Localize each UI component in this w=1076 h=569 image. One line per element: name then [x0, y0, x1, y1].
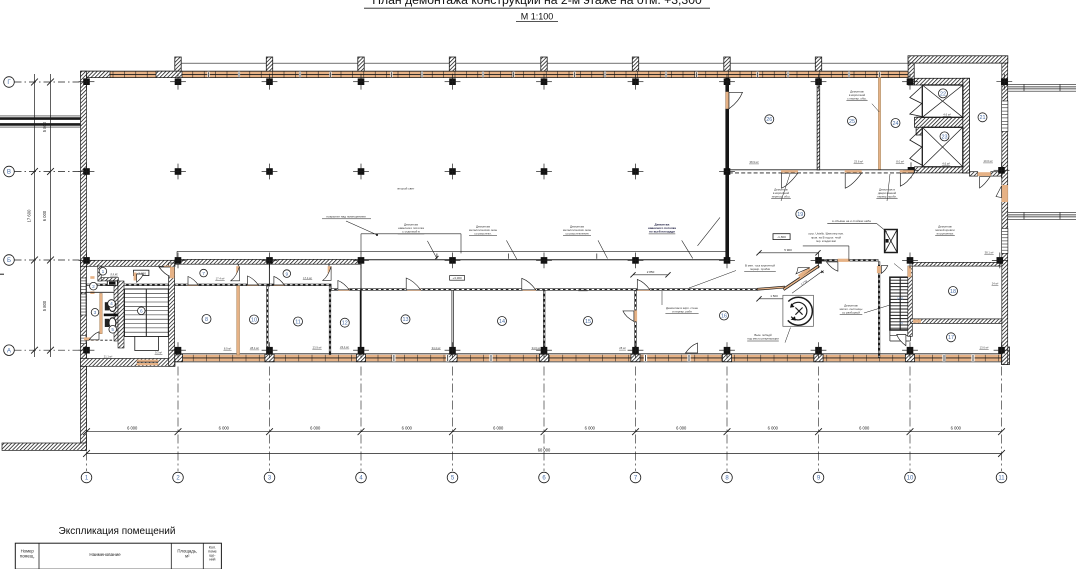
svg-text:6 000: 6 000	[859, 425, 870, 430]
svg-text:6 000: 6 000	[42, 210, 47, 221]
svg-text:6 000: 6 000	[402, 425, 413, 430]
svg-text:6 000: 6 000	[493, 425, 504, 430]
svg-text:4: 4	[110, 301, 113, 307]
svg-text:25: 25	[849, 119, 855, 125]
svg-text:23: 23	[942, 134, 948, 140]
svg-text:21: 21	[980, 115, 986, 121]
svg-text:17.4 м²: 17.4 м²	[216, 276, 225, 280]
svg-text:1 500: 1 500	[770, 294, 778, 298]
svg-text:5: 5	[111, 327, 114, 333]
svg-text:17.4 м²: 17.4 м²	[303, 276, 312, 280]
svg-text:со разборкой: со разборкой	[842, 310, 860, 314]
svg-text:6: 6	[140, 309, 143, 315]
svg-text:6 000: 6 000	[219, 425, 230, 430]
svg-text:покрытие над помещением: покрытие над помещением	[326, 214, 365, 218]
svg-text:4.6 м²: 4.6 м²	[942, 161, 950, 165]
svg-text:перекр. пробки: перекр. пробки	[750, 267, 771, 271]
svg-text:из рулонных: из рулонных	[937, 231, 954, 235]
svg-text:6 000: 6 000	[768, 425, 779, 430]
svg-text:19: 19	[797, 212, 803, 218]
svg-text:11: 11	[295, 319, 301, 325]
svg-text:М 1:100: М 1:100	[521, 12, 554, 22]
svg-text:Наименование: Наименование	[89, 552, 121, 557]
svg-text:6 000: 6 000	[310, 425, 321, 430]
svg-text:10.6 м²: 10.6 м²	[983, 159, 992, 163]
svg-text:9: 9	[285, 271, 288, 277]
svg-text:Экспликация помещений: Экспликация помещений	[59, 526, 176, 537]
svg-text:6 000: 6 000	[676, 425, 687, 430]
svg-text:23.6 м²: 23.6 м²	[854, 160, 863, 164]
svg-text:5 800: 5 800	[42, 300, 47, 311]
svg-text:13.6 м²: 13.6 м²	[980, 345, 989, 349]
svg-text:6 000: 6 000	[585, 425, 596, 430]
svg-text:под место рекуперации: под место рекуперации	[747, 337, 779, 341]
svg-text:с отделкой в: с отделкой в	[402, 230, 420, 234]
svg-text:12: 12	[342, 321, 348, 327]
svg-text:перегор. обш.: перегор. обш.	[772, 194, 791, 198]
svg-text:17.5 м²: 17.5 м²	[579, 287, 588, 291]
svg-text:13: 13	[403, 317, 409, 323]
svg-text:6 000: 6 000	[951, 425, 962, 430]
svg-text:1: 1	[102, 269, 105, 275]
svg-text:28.4 м²: 28.4 м²	[250, 346, 259, 350]
svg-text:60 000: 60 000	[538, 447, 551, 452]
svg-text:План демонтажа конструкций на: План демонтажа конструкций на 2-м этаже …	[372, 0, 702, 7]
svg-text:8: 8	[205, 317, 208, 323]
svg-text:38.9 м²: 38.9 м²	[749, 160, 758, 164]
svg-text:помещ.: помещ.	[20, 554, 35, 559]
svg-text:10: 10	[907, 476, 914, 482]
svg-text:8.9 м²: 8.9 м²	[224, 346, 231, 350]
svg-text:со расстекления: со расстекления	[565, 231, 588, 235]
svg-text:23.4 м²: 23.4 м²	[340, 345, 349, 349]
svg-text:6 000: 6 000	[127, 425, 138, 430]
svg-text:9.3 м²: 9.3 м²	[155, 350, 162, 354]
svg-text:16: 16	[721, 313, 727, 319]
svg-text:со расстекл.: со расстекл.	[474, 231, 491, 235]
svg-text:по всей площади: по всей площади	[649, 230, 675, 234]
svg-text:перекр. пробл.: перекр. пробл.	[877, 194, 897, 198]
svg-text:+3,300: +3,300	[452, 276, 462, 280]
svg-text:28 м²: 28 м²	[619, 346, 626, 350]
svg-text:2: 2	[92, 284, 95, 290]
svg-text:7: 7	[202, 271, 205, 277]
svg-text:10: 10	[251, 317, 257, 323]
svg-text:24: 24	[893, 121, 899, 127]
svg-text:22: 22	[940, 91, 946, 97]
svg-text:второй свет: второй свет	[398, 187, 415, 191]
svg-text:18: 18	[950, 289, 956, 295]
svg-text:8.0 м²: 8.0 м²	[896, 160, 904, 164]
svg-text:11: 11	[998, 476, 1005, 482]
svg-text:34.6 м²: 34.6 м²	[532, 346, 541, 350]
svg-text:и перекр. рабн: и перекр. рабн	[672, 309, 692, 313]
svg-text:21.1 м²: 21.1 м²	[104, 355, 113, 359]
svg-text:23.9 м²: 23.9 м²	[313, 345, 322, 349]
svg-text:3: 3	[94, 310, 97, 316]
svg-text:2.1 м²: 2.1 м²	[111, 272, 118, 276]
svg-text:4.6 м²: 4.6 м²	[943, 113, 951, 117]
svg-text:15: 15	[585, 319, 591, 325]
svg-text:17: 17	[948, 335, 954, 341]
svg-text:38.1 м²: 38.1 м²	[985, 251, 994, 255]
svg-text:с перекр. обш.: с перекр. обш.	[847, 96, 867, 100]
svg-text:Б: Б	[7, 257, 11, 264]
svg-text:34.4 м²: 34.4 м²	[432, 346, 441, 350]
svg-text:2 850: 2 850	[647, 270, 655, 274]
svg-text:5 900: 5 900	[784, 248, 792, 252]
svg-text:14: 14	[499, 319, 505, 325]
svg-text:5 800: 5 800	[42, 121, 47, 132]
svg-text:-1,800: -1,800	[777, 235, 786, 239]
svg-text:24 м²: 24 м²	[992, 282, 999, 286]
svg-text:м²: м²	[185, 554, 190, 559]
svg-text:ний: ний	[209, 558, 215, 562]
svg-text:14.30: 14.30	[897, 297, 904, 301]
svg-text:пер. кладки вап: пер. кладки вап	[816, 239, 837, 243]
svg-text:В: В	[7, 169, 11, 176]
svg-text:17 600: 17 600	[27, 209, 32, 222]
svg-text:26: 26	[766, 117, 772, 123]
svg-text:в объёме на и стойках нёба: в объёме на и стойках нёба	[832, 219, 871, 223]
